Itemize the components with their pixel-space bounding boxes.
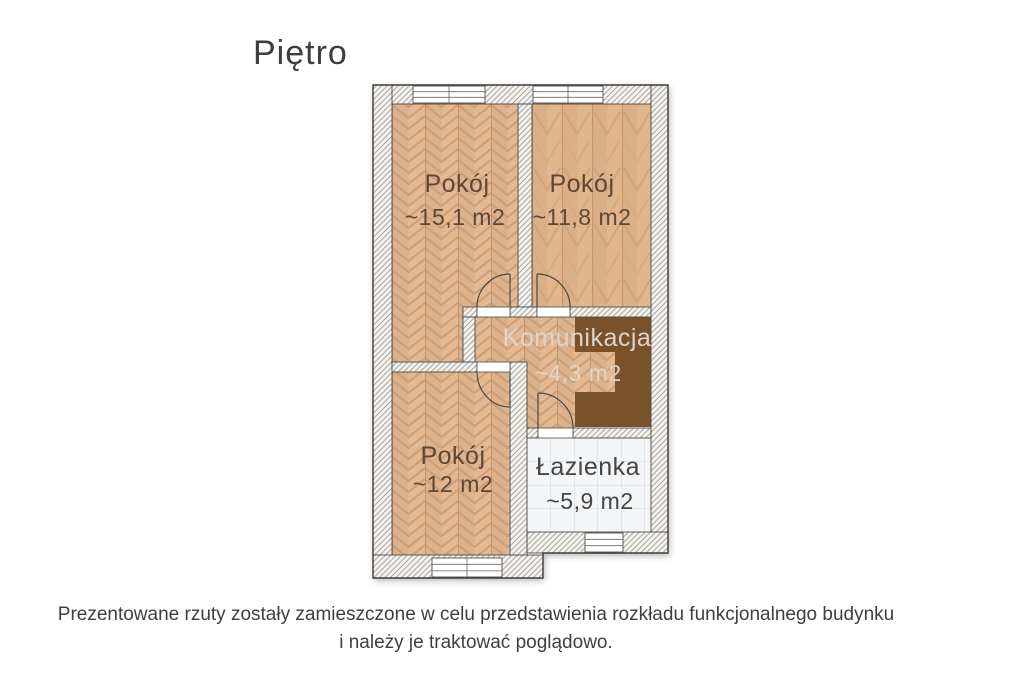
disclaimer: Prezentowane rzuty zostały zamieszczone … <box>0 601 952 657</box>
page-title: Piętro <box>253 34 348 73</box>
window-bathroom <box>585 533 623 552</box>
window-top-right <box>533 86 603 103</box>
disclaimer-line-2: i należy je traktować poglądowo. <box>0 629 952 657</box>
floor-plan-page: Piętro <box>0 0 1024 683</box>
floor-plan: Pokój ~15,1 m2 Pokój ~11,8 m2 Komunikacj… <box>350 70 690 590</box>
corridor-name: Komunikacja <box>503 324 652 352</box>
corridor-area: ~4,3 m2 <box>534 360 621 386</box>
bathroom-area: ~5,9 m2 <box>546 488 633 514</box>
room-pokoj-151-area: ~15,1 m2 <box>405 204 506 230</box>
bathroom-name: Łazienka <box>536 453 640 481</box>
window-top-left <box>413 86 485 103</box>
window-bottom-left <box>432 558 502 577</box>
floor-plan-drawing: Pokój ~15,1 m2 Pokój ~11,8 m2 Komunikacj… <box>350 70 690 590</box>
room-pokoj-151-name: Pokój <box>424 170 489 198</box>
room-pokoj-12-name: Pokój <box>420 442 485 470</box>
room-pokoj-118-name: Pokój <box>549 170 614 198</box>
room-pokoj-118-area: ~11,8 m2 <box>533 204 632 230</box>
disclaimer-line-1: Prezentowane rzuty zostały zamieszczone … <box>0 601 952 629</box>
room-pokoj-12-area: ~12 m2 <box>413 471 493 497</box>
